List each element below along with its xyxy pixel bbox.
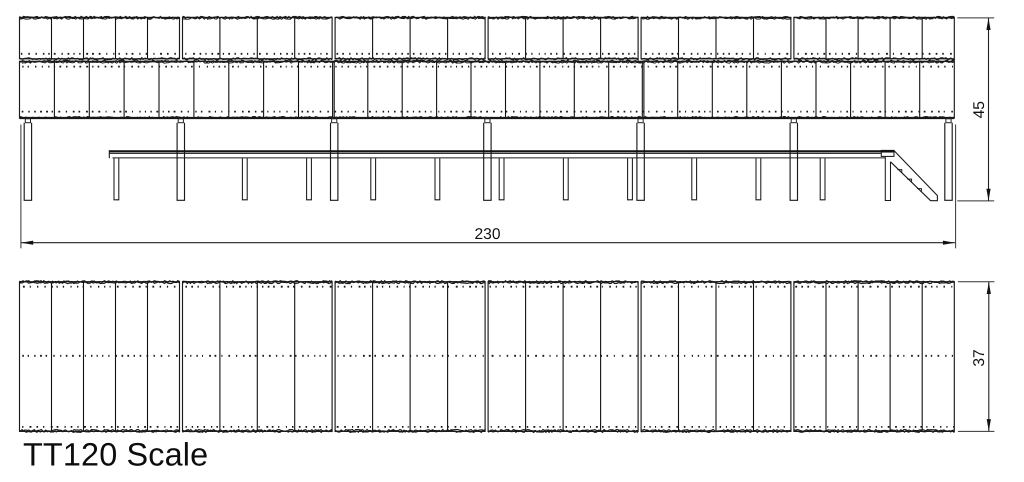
- svg-text:37: 37: [971, 349, 988, 366]
- svg-text:45: 45: [971, 101, 988, 119]
- svg-text:230: 230: [474, 226, 500, 243]
- svg-text:TT120 Scale: TT120 Scale: [23, 437, 208, 473]
